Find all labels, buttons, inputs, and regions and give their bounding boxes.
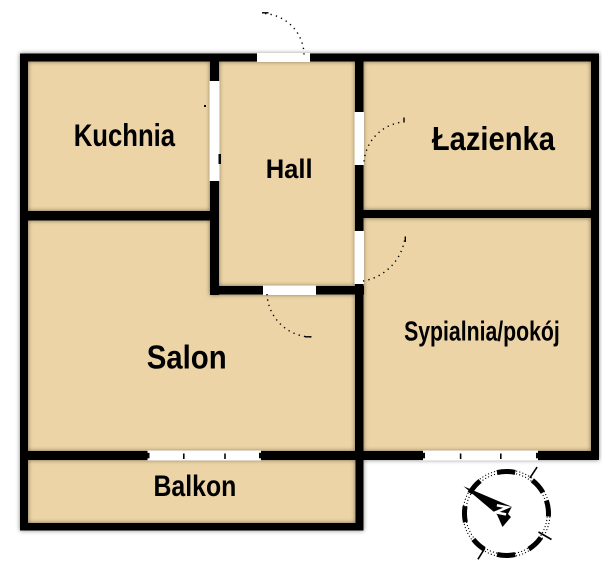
svg-text:Sypialnia/pokój: Sypialnia/pokój [404,315,560,346]
svg-text:Kuchnia: Kuchnia [74,118,176,153]
svg-text:Balkon: Balkon [154,470,237,503]
svg-text:Hall: Hall [266,153,313,184]
svg-text:Salon: Salon [147,339,227,376]
svg-text:Łazienka: Łazienka [432,121,555,158]
